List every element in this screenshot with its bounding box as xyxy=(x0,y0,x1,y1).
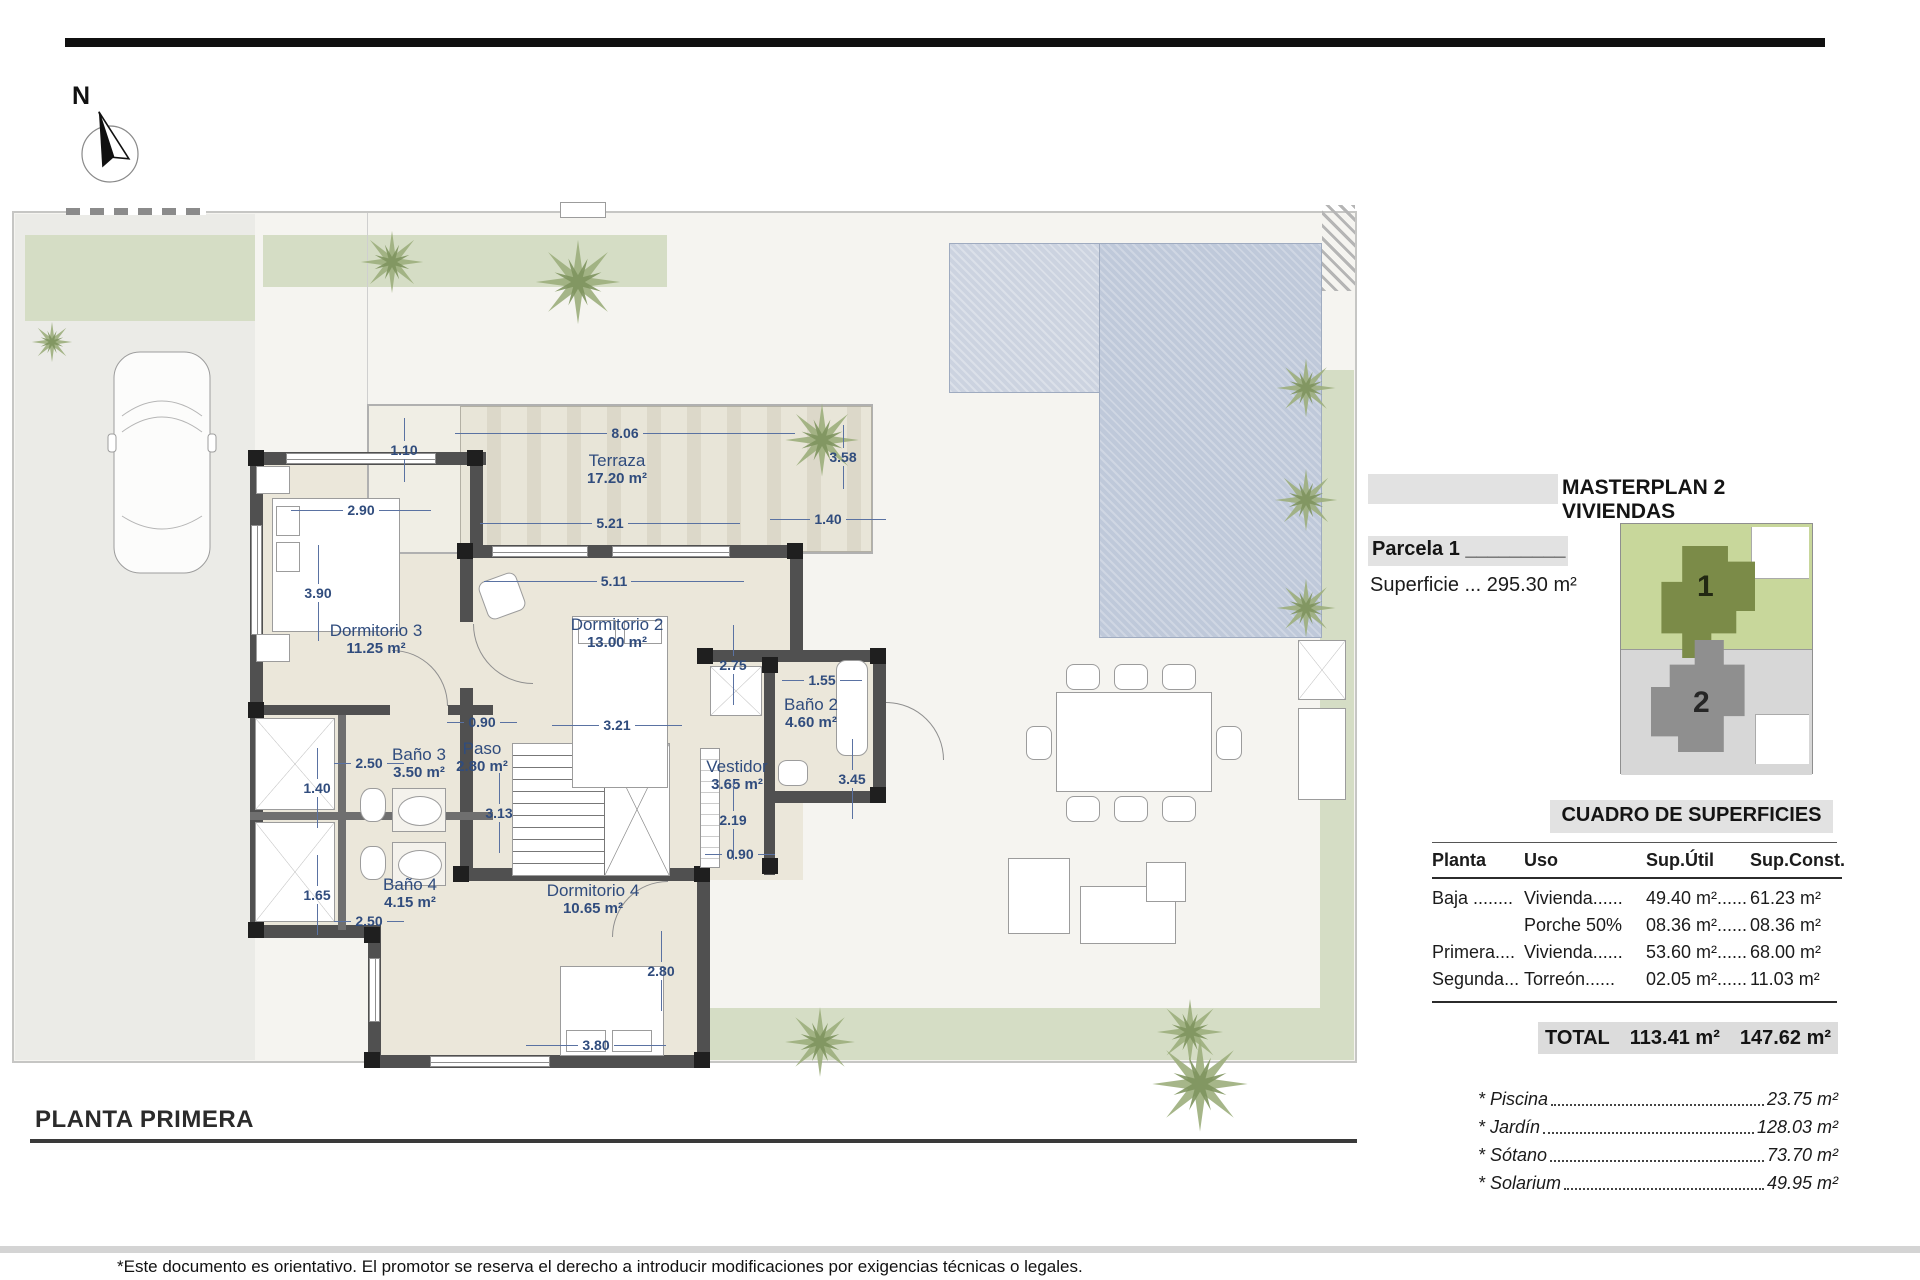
dimension-label: 5.21 xyxy=(592,515,627,531)
chair xyxy=(1162,796,1196,822)
table-cell: Porche 50% xyxy=(1524,912,1646,939)
dimension: 0.90 xyxy=(447,714,517,730)
lounge-sofa xyxy=(1008,858,1070,934)
bush-icon xyxy=(30,320,74,364)
side-table xyxy=(1146,862,1186,902)
column-header: Sup.Útil xyxy=(1646,847,1750,879)
dimension: 8.06 xyxy=(455,424,795,442)
dimension-label: 3.90 xyxy=(304,584,331,602)
unit-2-number: 2 xyxy=(1693,686,1710,720)
column-header: Uso xyxy=(1524,847,1646,879)
dimension-label: 5.11 xyxy=(597,573,631,589)
palm-tree-icon xyxy=(532,236,624,328)
dimension: 0.90 xyxy=(705,845,775,863)
window xyxy=(430,1056,550,1067)
footer-disclaimer: *Este documento es orientativo. El promo… xyxy=(117,1257,1083,1277)
extra-value: 128.03 m² xyxy=(1757,1117,1838,1138)
dimension-label: 0.90 xyxy=(722,846,757,862)
wall-corner xyxy=(457,543,473,559)
wall xyxy=(790,545,803,661)
chair xyxy=(1066,664,1100,690)
chair xyxy=(1114,796,1148,822)
parcel-1-notch xyxy=(1751,527,1809,579)
dimension: 2.75 xyxy=(718,625,748,705)
total-util: 113.41 m² xyxy=(1630,1027,1720,1050)
nightstand xyxy=(256,466,290,494)
floor-plan-sheet: N xyxy=(0,0,1920,1280)
planter xyxy=(1298,640,1346,700)
wall-corner xyxy=(787,543,803,559)
surfaces-table: Planta Uso Sup.Útil Sup.Const. Baja ....… xyxy=(1432,842,1837,1003)
title-underline xyxy=(30,1139,1357,1143)
pillow xyxy=(276,542,300,572)
dotted-leader xyxy=(1550,1160,1764,1162)
table-cell: Vivienda...... xyxy=(1524,939,1646,966)
masterplan-title: MASTERPLAN 2 VIVIENDAS xyxy=(1562,476,1827,524)
dimension-label: 2.50 xyxy=(351,755,386,771)
wall-corner xyxy=(870,648,886,664)
total-const: 147.62 m² xyxy=(1740,1027,1831,1050)
palm-tree-icon xyxy=(1274,576,1338,640)
masterplan-band xyxy=(1368,474,1558,504)
table-cell: 02.05 m²...... xyxy=(1646,966,1750,993)
dimension-label: 3.13 xyxy=(485,804,512,822)
wall xyxy=(764,661,775,875)
extras-list: * Piscina 23.75 m² * Jardín 128.03 m² * … xyxy=(1478,1082,1838,1194)
list-item: * Jardín 128.03 m² xyxy=(1478,1110,1838,1138)
extra-value: 49.95 m² xyxy=(1767,1173,1838,1194)
wall-corner xyxy=(694,866,710,882)
pillow xyxy=(578,620,616,644)
dining-table xyxy=(1056,692,1212,792)
window xyxy=(251,525,262,635)
footer-divider xyxy=(0,1246,1920,1253)
palm-tree-icon xyxy=(1148,1032,1252,1136)
dotted-leader xyxy=(1551,1104,1764,1106)
car-icon xyxy=(106,346,218,579)
wall xyxy=(770,791,886,803)
wall-corner xyxy=(694,1052,710,1068)
list-item: * Sótano 73.70 m² xyxy=(1478,1138,1838,1166)
dimension-label: 2.19 xyxy=(719,811,746,829)
palm-tree-icon xyxy=(782,1004,858,1080)
table-cell: Vivienda...... xyxy=(1524,885,1646,912)
dimension-label: 1.40 xyxy=(810,511,845,527)
window xyxy=(492,546,588,557)
table-cell: Baja ........ xyxy=(1432,885,1524,912)
swimming-pool xyxy=(949,243,1101,393)
dimension-label: 3.80 xyxy=(578,1037,613,1053)
dimension-label: 1.65 xyxy=(303,886,330,904)
parcel-label: Parcela 1 _________ xyxy=(1372,538,1566,561)
parcel-2-notch xyxy=(1755,714,1809,764)
table-cell: 49.40 m²...... xyxy=(1646,885,1750,912)
list-item: * Solarium 49.95 m² xyxy=(1478,1166,1838,1194)
toilet xyxy=(360,846,386,880)
table-cell: 68.00 m² xyxy=(1750,939,1842,966)
top-title-bar xyxy=(65,38,1825,47)
dimension: 1.55 xyxy=(782,671,862,689)
planter xyxy=(1298,708,1346,800)
dimension: 2.90 xyxy=(291,501,431,519)
sink xyxy=(398,850,442,880)
table-cell: 08.36 m² xyxy=(1750,912,1842,939)
hatched-corner xyxy=(1322,205,1355,291)
unit-1-number: 1 xyxy=(1697,570,1714,604)
terrace-gate xyxy=(560,202,606,218)
toilet xyxy=(360,788,386,822)
dimension-label: 8.06 xyxy=(607,425,642,441)
partition-wall xyxy=(338,715,346,930)
chair xyxy=(1026,726,1052,760)
extra-label: * Piscina xyxy=(1478,1089,1548,1110)
extra-label: * Sótano xyxy=(1478,1145,1547,1166)
table-cell: 11.03 m² xyxy=(1750,966,1842,993)
wall-corner xyxy=(762,657,778,673)
wall-corner xyxy=(870,787,886,803)
wall xyxy=(873,650,886,803)
dimension-label: 0.90 xyxy=(464,714,499,730)
nightstand xyxy=(256,634,290,662)
window xyxy=(612,546,730,557)
parcel-superficie: Superficie ... 295.30 m² xyxy=(1370,574,1577,597)
chair xyxy=(1216,726,1242,760)
pillow xyxy=(624,620,662,644)
wall-corner xyxy=(467,450,483,466)
chair xyxy=(1162,664,1196,690)
dimension: 1.65 xyxy=(302,855,332,935)
table-cell: Torreón...... xyxy=(1524,966,1646,993)
extra-label: * Jardín xyxy=(1478,1117,1540,1138)
dimension: 2.50 xyxy=(334,912,404,930)
table-cell xyxy=(1432,912,1524,939)
wall-corner xyxy=(248,922,264,938)
dimension: 5.11 xyxy=(484,572,744,590)
dimension-label: 1.10 xyxy=(390,441,417,459)
surfaces-title: CUADRO DE SUPERFICIES xyxy=(1550,804,1833,827)
table-cell: 53.60 m²...... xyxy=(1646,939,1750,966)
extra-value: 23.75 m² xyxy=(1767,1089,1838,1110)
dimension-label: 2.75 xyxy=(719,656,746,674)
dimension: 5.21 xyxy=(480,514,740,532)
masterplan-map: 1 2 xyxy=(1620,523,1813,774)
column-header: Planta xyxy=(1432,847,1524,879)
total-band: TOTAL 113.41 m² 147.62 m² xyxy=(1538,1022,1838,1054)
door-opening xyxy=(390,705,448,715)
dimension-label: 3.58 xyxy=(829,448,856,466)
dimension-label: 3.45 xyxy=(838,770,865,788)
dimension: 1.40 xyxy=(770,510,886,528)
wall-corner xyxy=(453,866,469,882)
table-cell: 61.23 m² xyxy=(1750,885,1842,912)
wall-corner xyxy=(697,648,713,664)
list-item: * Piscina 23.75 m² xyxy=(1478,1082,1838,1110)
sink xyxy=(778,760,808,786)
dimension: 3.90 xyxy=(303,545,333,641)
extra-value: 73.70 m² xyxy=(1767,1145,1838,1166)
dimension-label: 3.21 xyxy=(599,717,634,733)
dimension: 3.58 xyxy=(828,425,858,489)
wall xyxy=(697,868,710,1068)
north-compass-icon xyxy=(72,104,148,188)
table-cell: Primera.... xyxy=(1432,939,1524,966)
dotted-leader xyxy=(1543,1132,1754,1134)
palm-tree-icon xyxy=(1272,466,1340,534)
extra-label: * Solarium xyxy=(1478,1173,1561,1194)
palm-tree-icon xyxy=(1274,356,1338,420)
palm-tree-icon xyxy=(358,228,426,296)
window xyxy=(369,958,380,1022)
entrance-gate xyxy=(66,208,206,215)
table-cell: Segunda... xyxy=(1432,966,1524,993)
dimension: 1.40 xyxy=(302,748,332,828)
dimension-label: 2.80 xyxy=(647,962,674,980)
wall-corner xyxy=(364,1052,380,1068)
dimension: 3.80 xyxy=(526,1036,666,1054)
wall-corner xyxy=(248,702,264,718)
wall-corner xyxy=(248,450,264,466)
dotted-leader xyxy=(1564,1188,1764,1190)
dimension-label: 2.90 xyxy=(343,502,378,518)
dimension: 3.45 xyxy=(837,739,867,819)
chair xyxy=(1066,796,1100,822)
table-cell: 08.36 m²...... xyxy=(1646,912,1750,939)
dimension-label: 1.40 xyxy=(303,779,330,797)
garden-strip xyxy=(25,235,255,321)
dimension: 3.21 xyxy=(552,716,682,734)
sink xyxy=(398,796,442,826)
chair xyxy=(1114,664,1148,690)
page-title: PLANTA PRIMERA xyxy=(35,1106,254,1134)
dimension-label: 2.50 xyxy=(351,913,386,929)
dimension: 3.13 xyxy=(484,773,514,853)
dimension: 1.10 xyxy=(389,418,419,482)
dimension: 2.50 xyxy=(334,754,404,772)
dimension: 2.80 xyxy=(646,931,676,1011)
total-label: TOTAL xyxy=(1545,1027,1610,1050)
dimension-label: 1.55 xyxy=(804,672,839,688)
door-opening xyxy=(460,622,473,688)
column-header: Sup.Const. xyxy=(1750,847,1842,879)
